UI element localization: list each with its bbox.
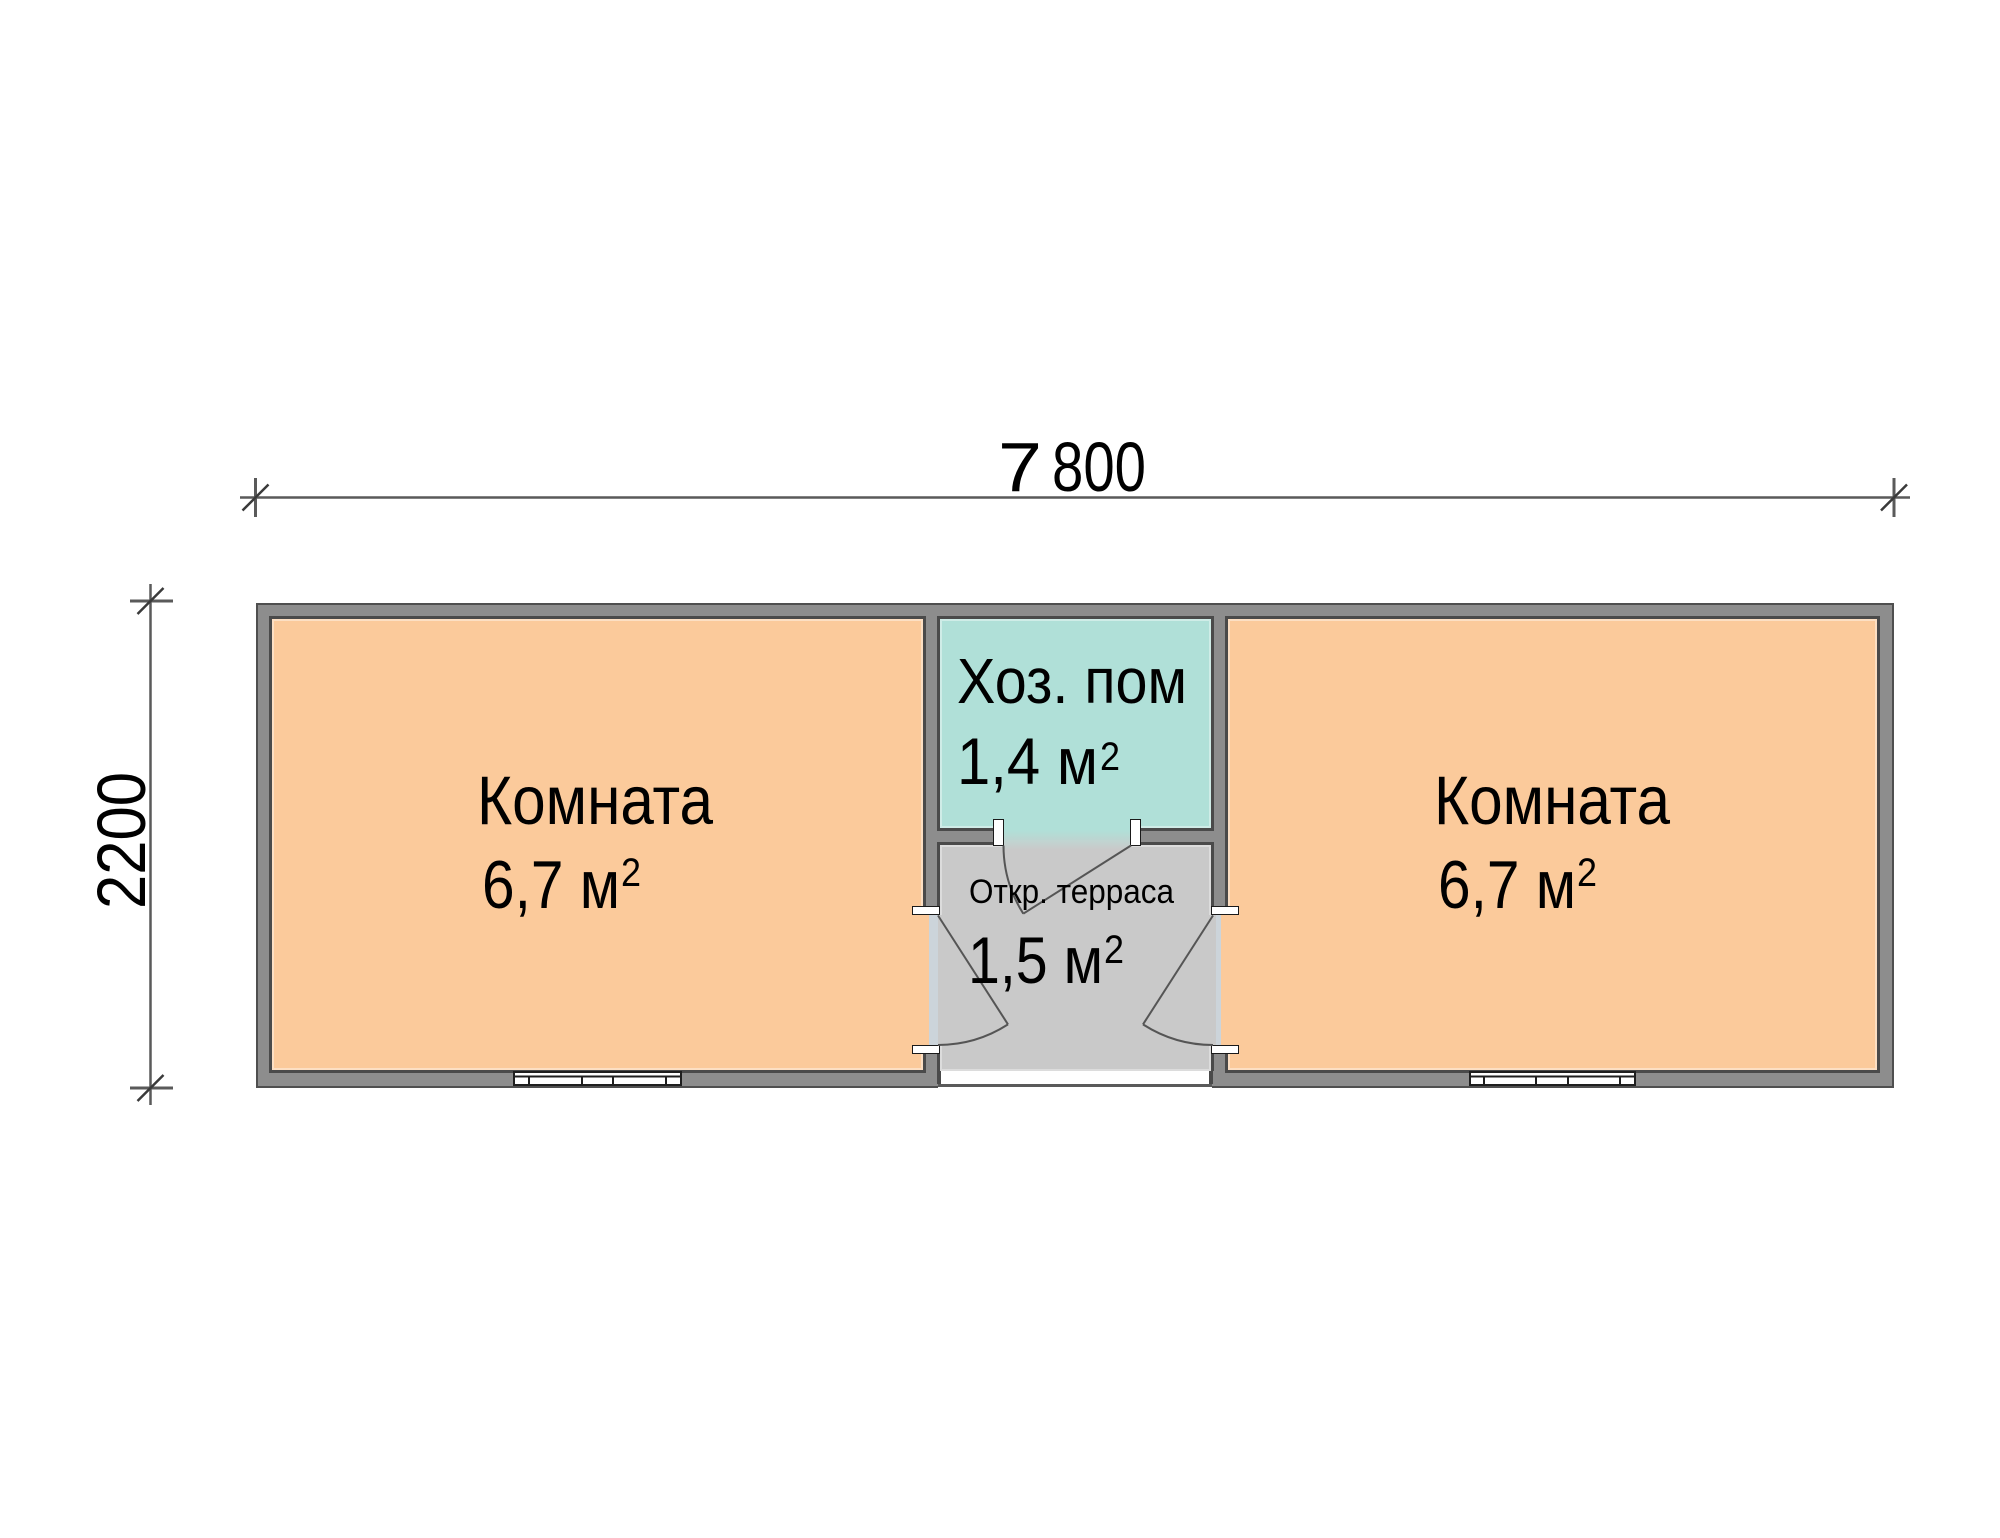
svg-text:1,5 м: 1,5 м: [968, 923, 1103, 997]
svg-text:Комната: Комната: [1434, 762, 1671, 839]
svg-text:2: 2: [1100, 735, 1120, 779]
svg-text:Комната: Комната: [477, 762, 714, 839]
svg-text:2: 2: [1577, 851, 1597, 895]
svg-text:1,4 м: 1,4 м: [957, 724, 1098, 798]
svg-text:7: 7: [998, 428, 1042, 506]
svg-text:2: 2: [621, 851, 641, 895]
svg-text:2200: 2200: [83, 772, 160, 909]
svg-text:Откр. терраса: Откр. терраса: [969, 873, 1174, 911]
svg-text:6,7 м: 6,7 м: [482, 847, 620, 923]
svg-text:6,7 м: 6,7 м: [1438, 847, 1576, 923]
svg-text:800: 800: [1052, 428, 1146, 506]
svg-text:Хоз. пом: Хоз. пом: [957, 645, 1187, 717]
svg-text:2: 2: [1104, 928, 1124, 972]
